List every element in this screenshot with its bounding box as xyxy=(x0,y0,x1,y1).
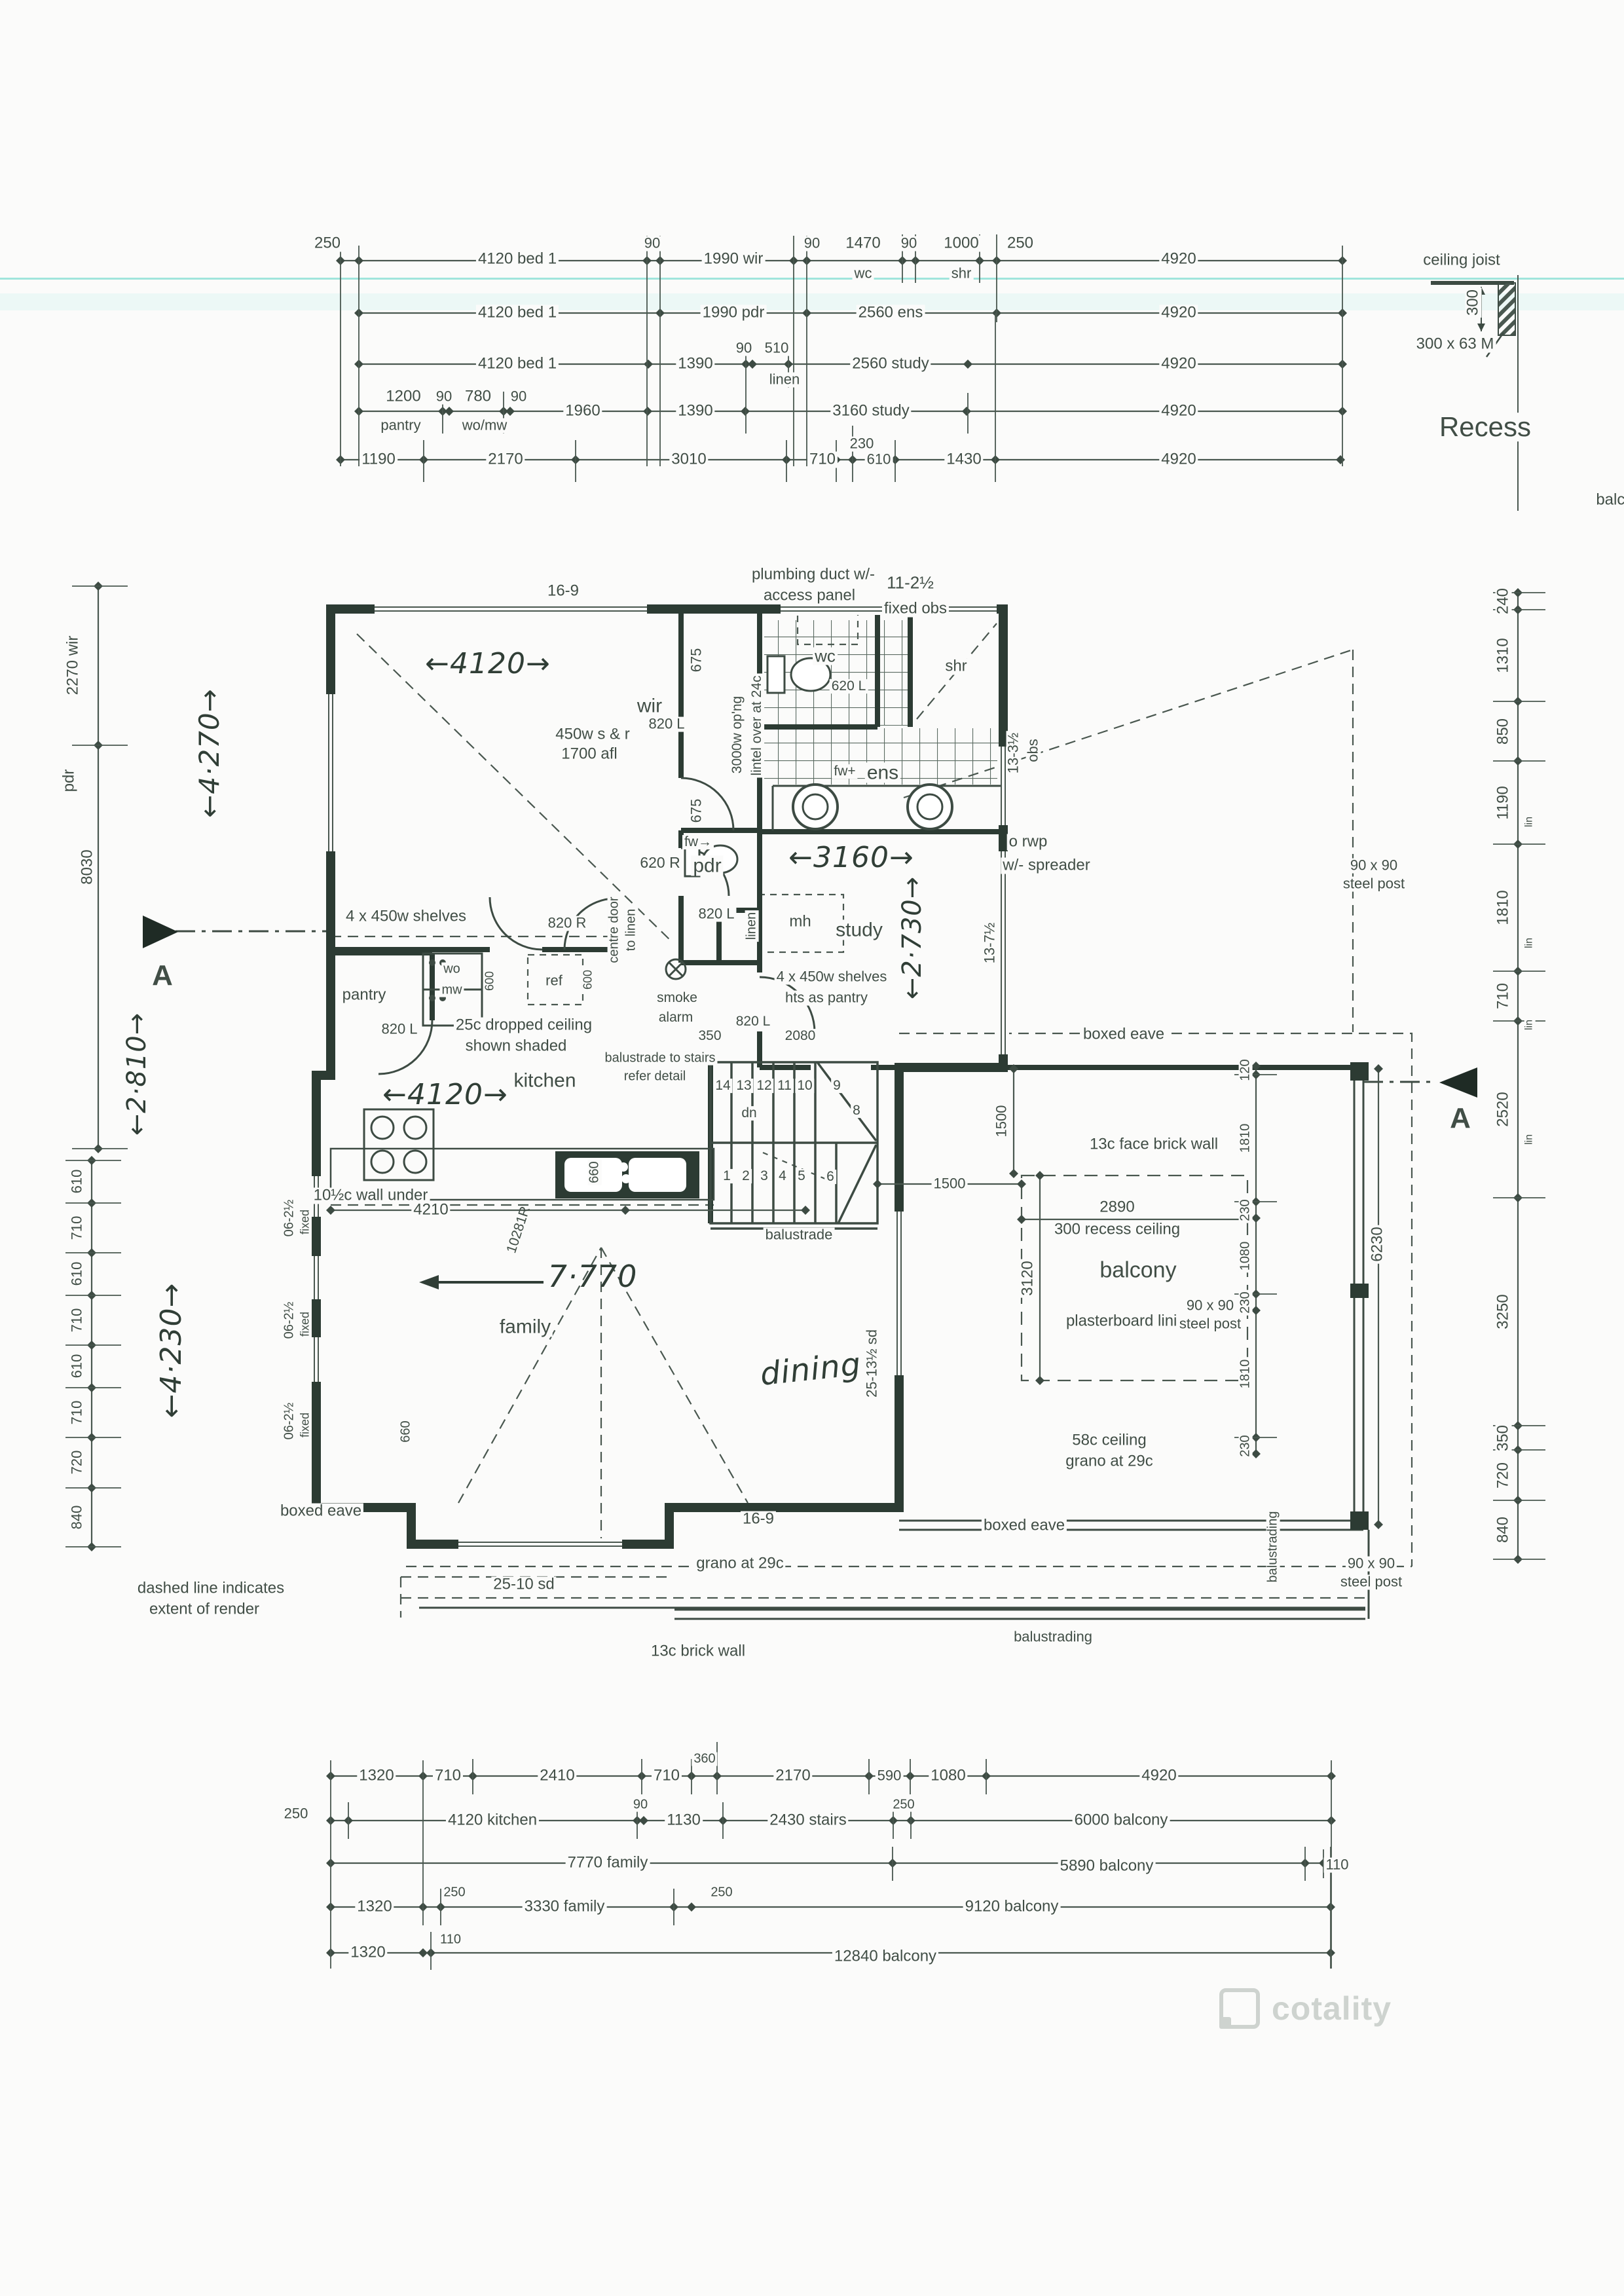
dim-label-33: 1190 xyxy=(360,452,397,468)
dim-label-174: steel post xyxy=(1341,877,1407,892)
hand-dim-2730: ←2·730→ xyxy=(899,876,927,1000)
dim-label-120: 4 xyxy=(777,1169,788,1183)
dim-label-56: fixed obs xyxy=(882,601,949,618)
dim-label-144: extent of render xyxy=(147,1602,261,1618)
dim-label-107: balustrade to stairs xyxy=(603,1052,718,1065)
dim-label-103: 820 L xyxy=(734,1014,773,1029)
dim-label-207: 4920 xyxy=(1139,1768,1178,1785)
dim-label-193: 610 xyxy=(70,1260,85,1288)
dim-label-31: 3160 study xyxy=(830,403,911,420)
dim-label-114: 9 xyxy=(831,1079,843,1093)
dim-label-199: 1320 xyxy=(357,1768,396,1785)
dim-label-198: 840 xyxy=(70,1504,85,1532)
dim-label-119: 3 xyxy=(758,1169,770,1183)
watermark-brand: cotality xyxy=(1272,1990,1392,2028)
dim-label-63: 820 L xyxy=(646,717,686,732)
dim-label-213: 250 xyxy=(891,1798,916,1812)
room-pdr: pdr xyxy=(691,855,723,876)
dim-label-177: 1310 xyxy=(1496,636,1512,675)
dim-label-84: mh xyxy=(787,914,813,931)
dim-label-197: 720 xyxy=(70,1449,85,1477)
dim-label-221: 250 xyxy=(709,1886,734,1900)
dim-label-101: alarm xyxy=(657,1010,695,1025)
dim-label-93: 600 xyxy=(484,969,496,993)
dim-label-109: 14 xyxy=(713,1079,732,1093)
dim-label-216: 5890 balcony xyxy=(1058,1859,1156,1875)
dim-label-131: 06-2½ xyxy=(283,1302,297,1339)
hand-dim-3160: ←3160→ xyxy=(788,843,914,873)
dim-250-top: 250 xyxy=(312,236,342,252)
balcony-clipped-text: balco xyxy=(1594,492,1624,509)
dim-label-11: 4920 xyxy=(1159,251,1198,268)
note-ceiling-joist: ceiling joist xyxy=(1421,253,1502,269)
dim-label-89: hts as pantry xyxy=(783,991,870,1006)
dim-label-185: 720 xyxy=(1496,1460,1512,1491)
dim-label-21: 2560 study xyxy=(850,356,931,373)
dim-label-138: 25-13½ sd xyxy=(865,1327,880,1399)
dim-label-145: 25-10 sd xyxy=(491,1577,556,1593)
hand-dim-4120-kitchen: ←4120→ xyxy=(382,1080,508,1110)
dim-label-189: lin xyxy=(1524,1018,1536,1032)
hand-dim-4120-bed1: ←4120→ xyxy=(425,649,551,679)
dim-label-87: 4 x 450w shelves xyxy=(344,909,468,925)
dim-label-115: 8 xyxy=(851,1103,862,1118)
dim-label-29: 1960 xyxy=(563,403,602,420)
dim-label-149: balustrading xyxy=(1266,1509,1280,1585)
dim-label-16: 4120 bed 1 xyxy=(476,356,559,373)
dim-label-15: 4920 xyxy=(1159,305,1198,322)
dim-label-81: to linen xyxy=(625,907,638,954)
dim-label-142: grano at 29c xyxy=(694,1556,785,1572)
dim-label-94: ref xyxy=(544,974,564,989)
dim-label-182: 2520 xyxy=(1496,1090,1512,1128)
dim-label-203: 360 xyxy=(692,1752,717,1766)
dim-label-169: 230 xyxy=(1239,1289,1253,1315)
dim-label-48: 8030 xyxy=(80,847,96,886)
dim-label-123: balustrade xyxy=(764,1228,835,1243)
dim-label-14: 2560 ens xyxy=(857,305,925,322)
dim-label-206: 1080 xyxy=(929,1768,967,1785)
floor-plan-page: 2504120 bed 1901990 wir901470wc901000shr… xyxy=(0,0,1624,2296)
dim-label-112: 11 xyxy=(775,1079,794,1093)
dim-label-47: pdr xyxy=(62,768,78,794)
dim-label-99: shown shaded xyxy=(464,1039,569,1055)
dim-label-102: 350 xyxy=(696,1029,723,1043)
dim-label-64: 3000w op'ng xyxy=(730,694,745,775)
dim-label-90: 820 R xyxy=(546,916,589,931)
dim-label-53: plumbing duct w/- xyxy=(750,567,877,583)
dim-label-167: 230 xyxy=(1239,1197,1253,1223)
dim-label-71: 13-3½ xyxy=(1006,731,1022,775)
room-kitchen: kitchen xyxy=(511,1070,578,1090)
dim-label-32: 4920 xyxy=(1159,403,1198,420)
dim-label-72: obs xyxy=(1026,737,1041,764)
dim-label-208: 250 xyxy=(282,1807,310,1822)
dim-label-178: 850 xyxy=(1496,716,1512,747)
dim-label-91: wo xyxy=(441,963,462,976)
dim-label-88: 4 x 450w shelves xyxy=(775,970,889,985)
dim-label-62: 1700 afl xyxy=(559,747,619,763)
dim-label-83: linen xyxy=(745,910,759,942)
dim-label-171: 230 xyxy=(1239,1433,1253,1458)
dim-label-82: 820 L xyxy=(696,907,736,922)
room-wc: wc xyxy=(813,647,838,665)
dim-label-224: 110 xyxy=(438,1933,463,1947)
dim-label-170: 1810 xyxy=(1239,1358,1253,1391)
dim-label-127: 4210 xyxy=(411,1202,450,1219)
dim-label-22: 4920 xyxy=(1159,356,1198,373)
dim-label-192: 710 xyxy=(70,1214,85,1242)
room-shr: shr xyxy=(943,659,969,675)
dim-label-92: mw xyxy=(439,984,464,997)
dim-label-73: 675 xyxy=(690,797,705,825)
dim-label-150: 90 x 90 xyxy=(1346,1557,1397,1572)
dim-label-202: 710 xyxy=(652,1768,682,1785)
dim-label-133: 06-2½ xyxy=(283,1403,297,1440)
recess-title: Recess xyxy=(1437,413,1533,441)
dim-label-97: 820 L xyxy=(379,1022,419,1037)
dim-label-129: 06-2½ xyxy=(283,1200,297,1237)
hand-dim-4230: ←4·230→ xyxy=(157,1283,187,1418)
dim-label-35: 3010 xyxy=(669,452,708,468)
dim-label-214: 6000 balcony xyxy=(1073,1813,1170,1829)
dim-label-195: 610 xyxy=(70,1352,85,1380)
dim-label-20: linen xyxy=(767,373,802,388)
section-marker-a-left: A xyxy=(152,961,173,991)
dim-label-196: 710 xyxy=(70,1399,85,1427)
dim-label-139: 660 xyxy=(399,1418,413,1444)
dim-label-164: grano at 29c xyxy=(1063,1454,1154,1470)
dim-label-132: fixed xyxy=(299,1312,312,1337)
dim-label-7: 90 xyxy=(899,236,919,251)
dim-label-159: 3120 xyxy=(1020,1259,1037,1297)
dim-label-146: 13c brick wall xyxy=(649,1644,747,1660)
dim-label-191: 610 xyxy=(70,1168,85,1196)
dim-label-18: 90 xyxy=(734,341,754,356)
dim-label-128: 660 xyxy=(588,1159,602,1185)
dim-label-65: lintel over at 24c xyxy=(750,674,764,778)
dim-label-25: 90 xyxy=(434,390,454,405)
dim-label-210: 90 xyxy=(631,1798,650,1812)
dim-label-186: 840 xyxy=(1496,1515,1512,1545)
dim-label-46: 2270 wir xyxy=(65,634,82,697)
dim-label-42: 300 xyxy=(1466,287,1482,318)
dim-label-155: 13c face brick wall xyxy=(1088,1137,1220,1153)
dim-label-104: 2080 xyxy=(783,1029,818,1043)
dim-label-201: 2410 xyxy=(538,1768,576,1785)
dim-label-2: 90 xyxy=(642,236,662,251)
dim-label-161: 90 x 90 xyxy=(1185,1299,1236,1314)
dim-label-69: fw+ xyxy=(832,764,857,779)
dim-label-74: fw→ xyxy=(682,835,714,849)
dim-label-26: 780 xyxy=(463,389,493,405)
dim-label-13: 1990 pdr xyxy=(701,305,767,322)
dim-label-172: 6230 xyxy=(1370,1225,1386,1263)
dim-label-37: 230 xyxy=(848,437,876,452)
dim-label-225: 12840 balcony xyxy=(832,1949,938,1965)
dim-label-218: 1320 xyxy=(355,1899,394,1916)
dim-label-8: 1000 xyxy=(942,236,980,252)
dim-label-222: 9120 balcony xyxy=(963,1899,1061,1916)
dim-label-205: 590 xyxy=(876,1769,904,1784)
dim-label-190: lin xyxy=(1524,1132,1536,1147)
dim-label-17: 1390 xyxy=(676,356,714,373)
dim-label-194: 710 xyxy=(70,1306,85,1335)
room-family: family xyxy=(498,1316,553,1337)
dim-label-40: 4920 xyxy=(1159,452,1198,468)
dim-label-36: 710 xyxy=(807,452,838,468)
dim-label-188: lin xyxy=(1524,936,1536,950)
dim-label-30: 1390 xyxy=(676,403,714,420)
dim-label-156: 2890 xyxy=(1098,1200,1136,1216)
dim-label-163: 58c ceiling xyxy=(1070,1433,1148,1449)
room-pantry: pantry xyxy=(341,988,388,1004)
dim-label-141: 16-9 xyxy=(741,1511,776,1528)
dim-label-111: 12 xyxy=(754,1079,773,1093)
hand-dim-4270: ←4·270→ xyxy=(195,688,224,818)
dim-label-6: wc xyxy=(853,267,874,282)
dim-label-5: 1470 xyxy=(843,236,882,252)
dim-label-110: 13 xyxy=(734,1079,753,1093)
dim-label-121: 5 xyxy=(796,1169,807,1183)
dim-label-27: wo/mw xyxy=(460,418,509,434)
dim-label-80: centre door xyxy=(608,895,621,965)
dim-label-143: dashed line indicates xyxy=(136,1581,286,1597)
dim-label-134: fixed xyxy=(299,1413,312,1437)
dim-label-173: 90 x 90 xyxy=(1348,859,1399,874)
dim-label-181: 710 xyxy=(1496,981,1512,1011)
dim-label-154: 1500 xyxy=(995,1103,1010,1139)
dim-label-12: 4120 bed 1 xyxy=(476,305,559,322)
dim-label-34: 2170 xyxy=(486,452,525,468)
dim-label-9: shr xyxy=(950,267,974,282)
dim-label-148: balustrading xyxy=(1012,1630,1094,1645)
dim-label-95: 600 xyxy=(582,968,595,991)
section-marker-a-right: A xyxy=(1450,1103,1471,1134)
dim-label-223: 1320 xyxy=(348,1945,387,1961)
dim-label-59: 675 xyxy=(690,646,705,675)
dim-label-176: 240 xyxy=(1496,586,1512,616)
dim-label-75: 620 R xyxy=(638,855,682,871)
dim-label-165: 120 xyxy=(1239,1057,1253,1083)
dim-label-55: 11-2½ xyxy=(885,574,936,591)
dim-label-19: 510 xyxy=(763,341,791,356)
dim-label-200: 710 xyxy=(433,1768,463,1785)
dim-label-217: 110 xyxy=(1323,1858,1350,1873)
dim-label-117: 1 xyxy=(721,1169,733,1183)
room-balcony: balcony xyxy=(1098,1259,1178,1282)
dim-4120-bed1: 4120 bed 1 xyxy=(476,251,559,268)
room-wir: wir xyxy=(635,695,664,716)
dim-label-39: 1430 xyxy=(944,452,983,468)
dim-label-28: 90 xyxy=(509,390,528,405)
dim-label-57: 16-9 xyxy=(545,583,581,600)
cotality-logo-icon xyxy=(1219,1988,1260,2029)
dim-label-209: 4120 kitchen xyxy=(446,1813,539,1829)
dim-label-67: 620 L xyxy=(830,679,868,694)
dim-label-124: 1500 xyxy=(932,1177,968,1192)
dim-label-153: boxed eave xyxy=(1081,1027,1166,1043)
dim-label-140: boxed eave xyxy=(278,1504,363,1520)
dim-label-179: 1190 xyxy=(1496,784,1512,822)
dim-label-100: smoke xyxy=(655,991,699,1005)
dim-label-183: 3250 xyxy=(1496,1292,1512,1331)
dim-label-219: 250 xyxy=(441,1886,467,1900)
dim-label-116: dn xyxy=(739,1106,758,1120)
dim-label-157: 300 recess ceiling xyxy=(1052,1222,1182,1238)
dim-label-98: 25c dropped ceiling xyxy=(454,1018,594,1034)
dim-label-24: pantry xyxy=(378,418,422,434)
dim-label-168: 1080 xyxy=(1239,1240,1253,1273)
dim-label-220: 3330 family xyxy=(523,1899,607,1916)
dim-label-184: 350 xyxy=(1496,1423,1512,1453)
dim-label-204: 2170 xyxy=(773,1768,812,1785)
dim-label-118: 2 xyxy=(740,1169,752,1183)
hand-dim-2810: ←2·810→ xyxy=(124,1012,151,1136)
dim-label-151: steel post xyxy=(1338,1575,1404,1590)
dim-label-166: 1810 xyxy=(1239,1122,1253,1155)
dim-label-152: 13-7½ xyxy=(983,921,998,965)
dim-label-54: access panel xyxy=(762,588,857,604)
dim-label-147: boxed eave xyxy=(982,1518,1067,1534)
dim-label-122: 6 xyxy=(824,1170,836,1184)
dim-label-160: plasterboard lining xyxy=(1064,1314,1196,1330)
dim-label-130: fixed xyxy=(299,1210,312,1234)
dim-label-212: 2430 stairs xyxy=(767,1813,848,1829)
dim-label-79: w/- spreader xyxy=(1001,858,1092,874)
dim-label-61: 450w s & r xyxy=(553,727,631,743)
dim-label-215: 7770 family xyxy=(566,1855,650,1872)
dim-label-10: 250 xyxy=(1005,236,1035,252)
dim-label-38: 610 xyxy=(865,453,893,468)
dim-label-23: 1200 xyxy=(384,389,422,405)
dim-label-108: refer detail xyxy=(622,1070,688,1084)
dim-1990-wir: 1990 wir xyxy=(702,251,766,268)
dim-label-211: 1130 xyxy=(665,1813,703,1829)
room-ens: ens xyxy=(865,762,900,783)
dim-label-187: lin xyxy=(1524,815,1536,829)
dim-label-4: 90 xyxy=(802,236,822,251)
dim-label-78: o rwp xyxy=(1007,834,1050,851)
hand-dim-7770: 7·770 xyxy=(548,1261,638,1293)
note-300x63: 300 x 63 M xyxy=(1414,337,1496,353)
watermark: cotality xyxy=(1219,1988,1392,2029)
room-study: study xyxy=(834,919,885,940)
dim-label-162: steel post xyxy=(1177,1317,1243,1332)
dim-label-113: 10 xyxy=(795,1079,814,1093)
dim-label-180: 1810 xyxy=(1496,888,1512,927)
dimension-lines xyxy=(0,0,1624,2296)
